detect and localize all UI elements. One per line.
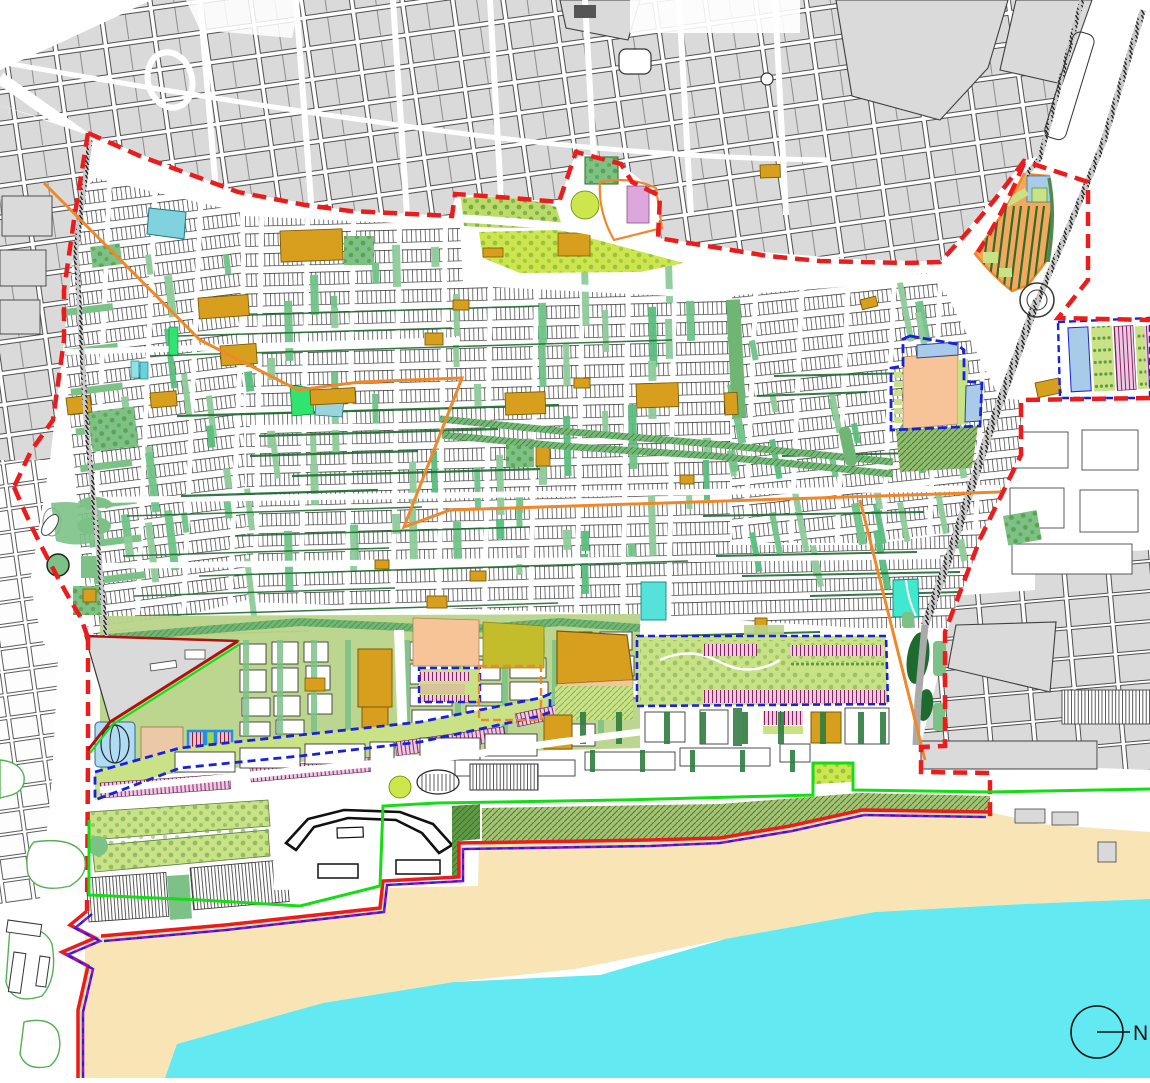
svg-text:N: N (1133, 1022, 1148, 1045)
